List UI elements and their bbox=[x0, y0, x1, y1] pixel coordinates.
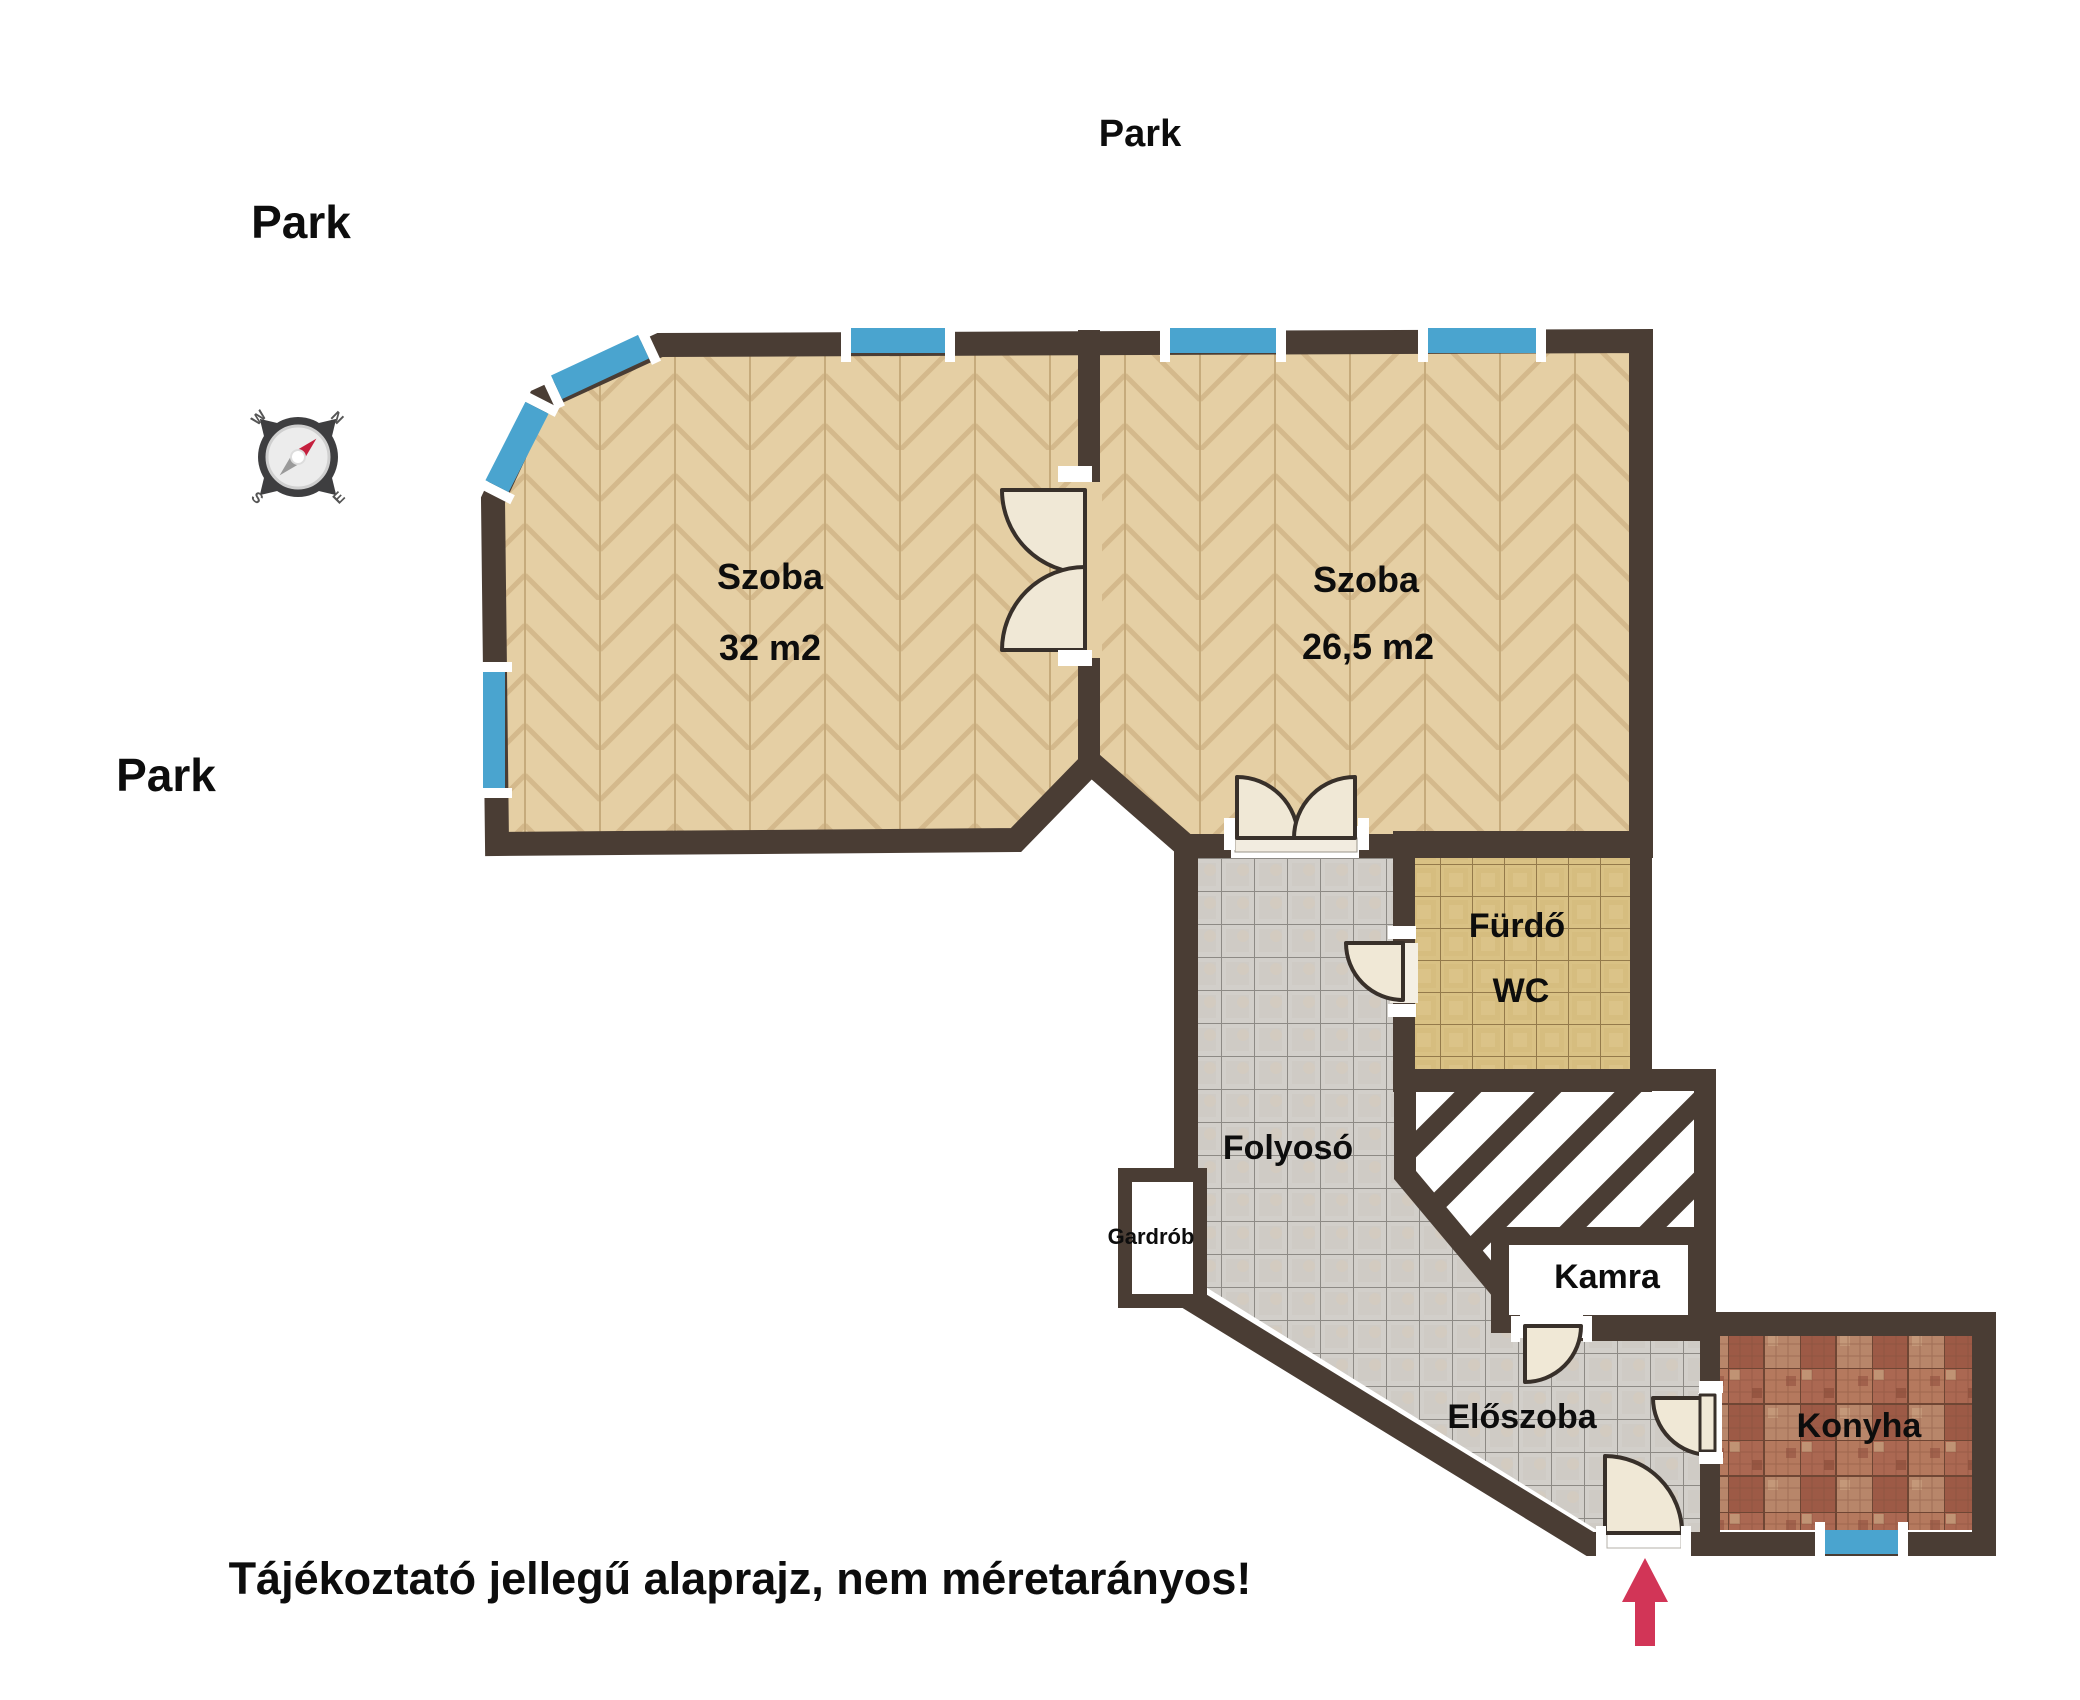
szoba1-area: 32 m2 bbox=[719, 627, 821, 668]
floors bbox=[505, 352, 1974, 1532]
compass-icon: N W S E bbox=[247, 406, 348, 507]
eloszoba-label: Előszoba bbox=[1447, 1398, 1597, 1436]
konyha-label: Konyha bbox=[1797, 1407, 1923, 1445]
park-label-left: Park bbox=[116, 749, 216, 801]
compass-s: S bbox=[247, 489, 266, 508]
park-label-top: Park bbox=[1099, 113, 1182, 155]
kamra-label: Kamra bbox=[1554, 1258, 1661, 1296]
park-label-upper-left: Park bbox=[251, 196, 351, 248]
compass-e: E bbox=[330, 489, 349, 508]
wc-label: WC bbox=[1493, 972, 1550, 1010]
szoba1-label: Szoba bbox=[717, 556, 824, 597]
szoba2-label: Szoba bbox=[1313, 559, 1420, 600]
gardrob-label: Gardrób bbox=[1108, 1224, 1195, 1249]
furdo-label: Fürdő bbox=[1469, 907, 1565, 945]
szoba2-area: 26,5 m2 bbox=[1302, 626, 1434, 667]
disclaimer-text: Tájékoztató jellegű alaprajz, nem méreta… bbox=[229, 1553, 1252, 1604]
entrance-arrow-icon bbox=[1622, 1558, 1668, 1646]
door-panel-konyha bbox=[1700, 1395, 1715, 1451]
furdo-floor bbox=[1410, 848, 1630, 1072]
folyoso-label: Folyosó bbox=[1223, 1129, 1353, 1167]
floor-plan: N W S E Park Park Park Szoba 32 m2 Szoba… bbox=[0, 0, 2080, 1700]
